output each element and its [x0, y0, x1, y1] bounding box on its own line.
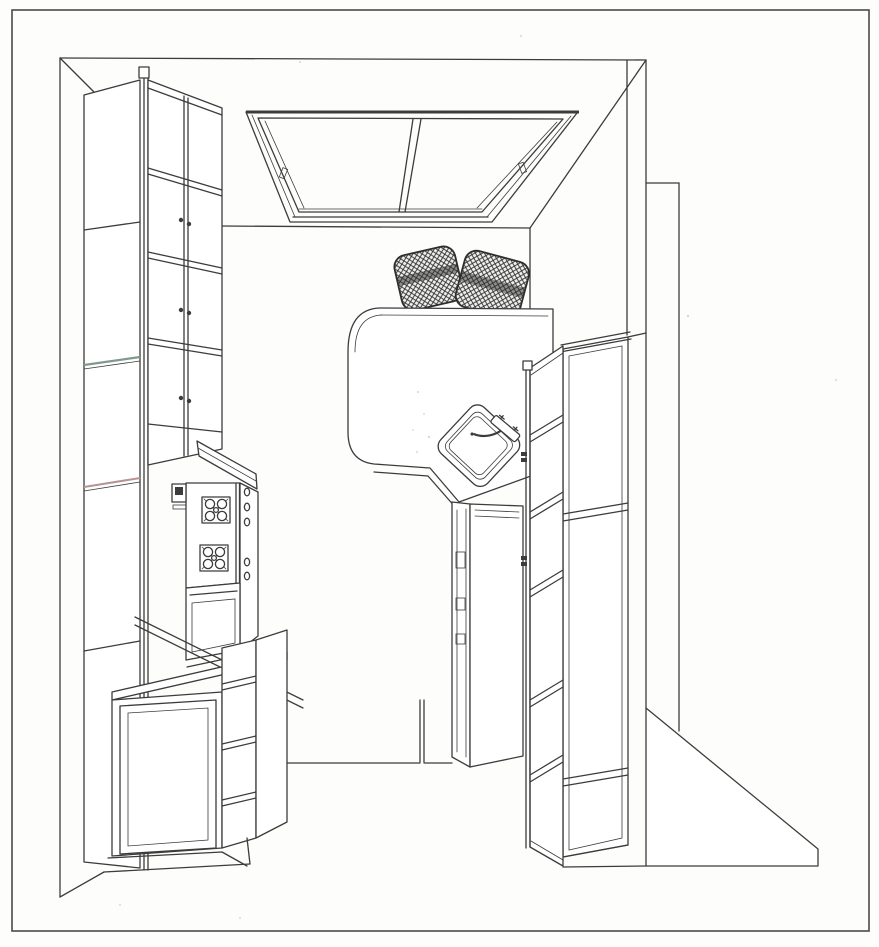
cabinet-big-door	[120, 700, 216, 854]
drawer-stack	[222, 640, 256, 848]
door-hinge	[521, 562, 527, 566]
door-knob	[187, 222, 191, 226]
cabinet-carcass	[563, 337, 628, 857]
kitchen-rendering-page	[0, 0, 879, 947]
range-display-screen	[175, 487, 183, 495]
door-knob	[187, 311, 191, 315]
sink-base-side	[452, 502, 470, 767]
sink-base-front	[470, 504, 523, 767]
door-knob	[179, 396, 183, 400]
door-knob	[187, 399, 191, 403]
door-knob	[179, 218, 183, 222]
drawer-unit-side	[256, 630, 287, 838]
door-face	[530, 346, 563, 866]
door-knob	[179, 308, 183, 312]
door-top-pivot	[139, 67, 149, 78]
upper-cabinet-band	[148, 80, 222, 465]
door-hinge	[521, 452, 527, 456]
band-face	[148, 80, 222, 465]
door-top-cap	[523, 361, 532, 370]
cooktop-panel	[186, 483, 240, 588]
door-hinge	[521, 556, 527, 560]
kitchen-perspective-drawing	[0, 0, 879, 947]
door-hinge	[521, 458, 527, 462]
